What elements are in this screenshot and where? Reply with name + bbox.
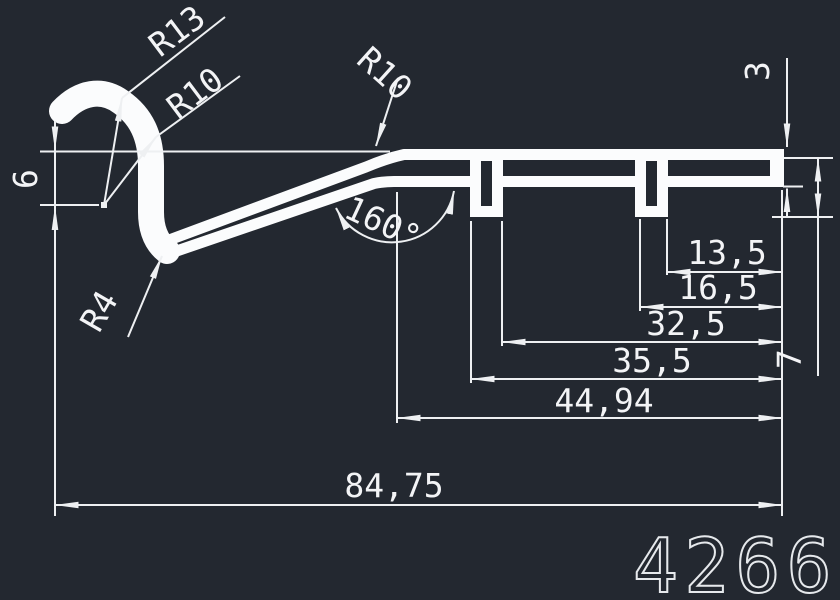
dimension-value: 35,5 xyxy=(612,341,691,380)
dimension-value: 84,75 xyxy=(344,466,443,505)
dimension-value: 3 xyxy=(738,61,777,81)
profile-right-hook-slot xyxy=(646,161,657,206)
profile-drawing: 13,5 16,5 32,5 35,5 44,94 84,75 6 3 7 xyxy=(0,0,840,600)
dimension-value: 16,5 xyxy=(678,268,757,307)
profile-end-cap xyxy=(770,149,784,187)
dimension-value: 6 xyxy=(6,169,45,189)
dimension-value: 13,5 xyxy=(687,233,766,272)
dimension-value: 44,94 xyxy=(554,381,653,420)
part-number: 4266 xyxy=(633,522,838,600)
cad-drawing-canvas: 13,5 16,5 32,5 35,5 44,94 84,75 6 3 7 xyxy=(0,0,840,600)
dimension-value: 32,5 xyxy=(646,304,725,343)
dimension-value: 7 xyxy=(770,349,809,369)
profile-left-hook-slot xyxy=(481,161,492,206)
